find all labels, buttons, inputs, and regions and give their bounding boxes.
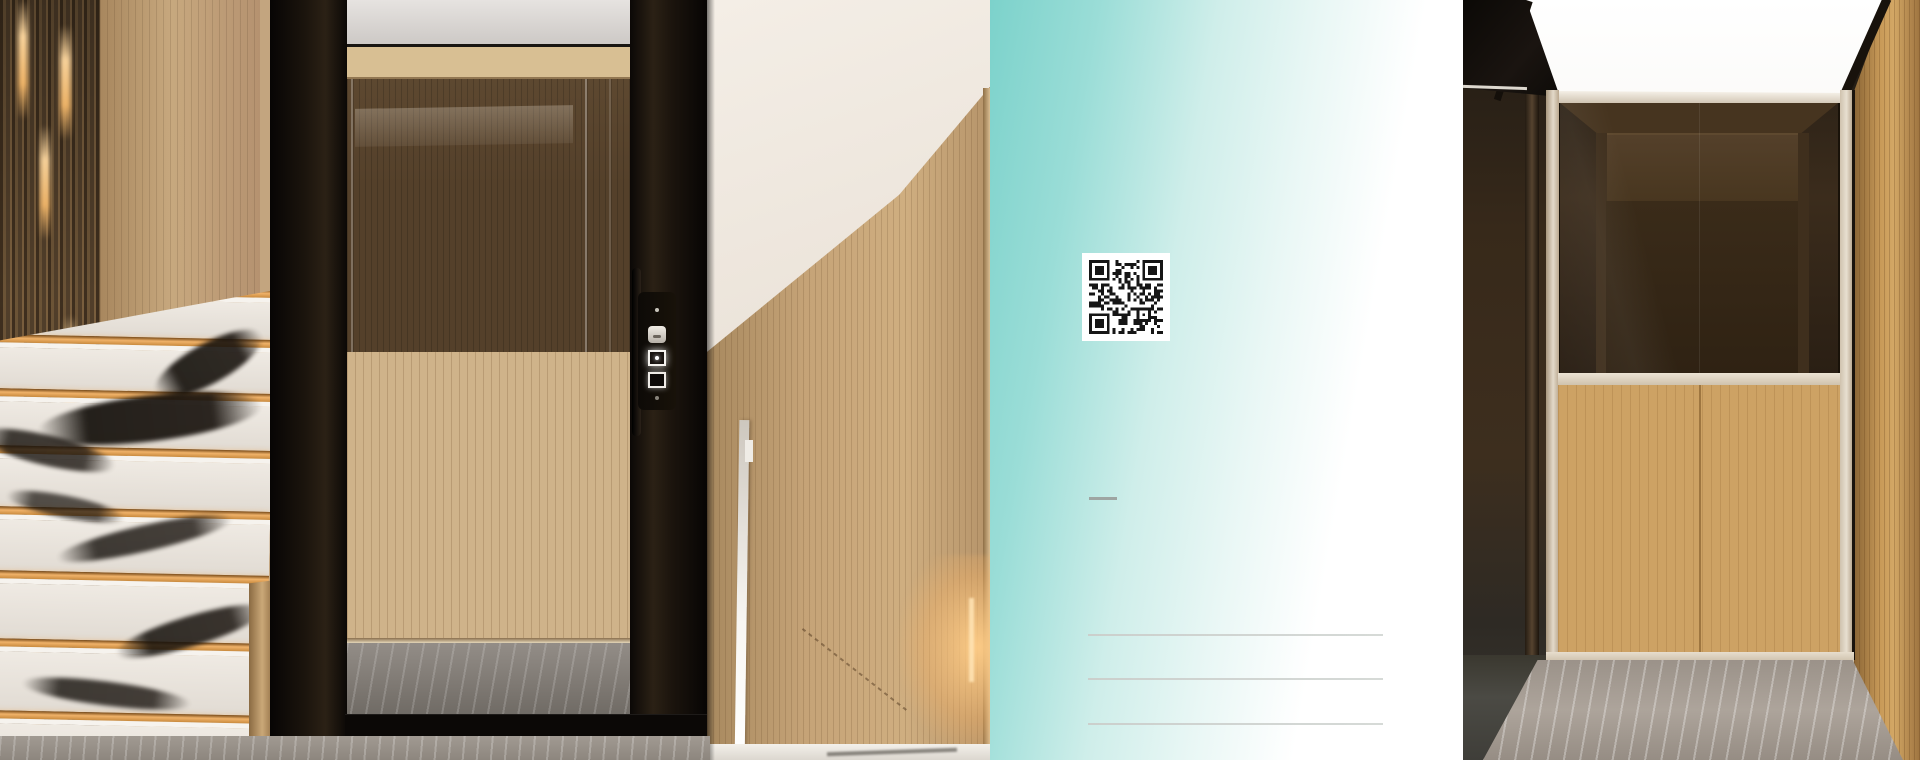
glass-reflection [355, 105, 573, 147]
smoked-glass-panel [1558, 103, 1840, 373]
divider-dash [1089, 497, 1117, 500]
indicator-dot [655, 396, 659, 400]
cab-lower-wall [347, 352, 630, 638]
call-button-up[interactable] [648, 350, 666, 366]
cab-upper-wall [347, 79, 630, 352]
wood-door-edge [249, 581, 271, 760]
brochure-spread [0, 0, 1920, 760]
cab-glass-top [347, 0, 630, 47]
elevator-control-panel [638, 292, 676, 410]
wood-grain [1854, 0, 1920, 760]
wall-sconce-light [969, 598, 974, 682]
railing-step-notch [745, 440, 753, 462]
cabin-floor-marble [1483, 660, 1903, 760]
elevator-cab [347, 0, 630, 716]
frame-shadow-line [1852, 90, 1855, 660]
glass-reflection [1558, 103, 1700, 373]
key-slot [653, 335, 661, 338]
contact-line [1088, 723, 1383, 725]
glass-door-edge [585, 79, 587, 352]
qr-code [1089, 260, 1163, 334]
accent-light [18, 0, 28, 120]
wood-grain [347, 352, 630, 638]
glass-door-edge [609, 79, 611, 352]
right-photo-cabin-interior [1463, 0, 1920, 760]
key-switch[interactable] [648, 326, 666, 343]
cab-floor-marble [347, 643, 630, 716]
teal-gradient-panel [990, 0, 1463, 760]
landing-wood-wall [707, 0, 990, 760]
indicator-dot [655, 308, 659, 312]
qr-code-patch [1082, 253, 1170, 341]
wall-sconce-glow [895, 555, 990, 760]
elevator-frame-left [270, 0, 347, 748]
accent-light [60, 25, 71, 140]
cab-pilaster [1798, 133, 1809, 373]
accent-light [40, 125, 50, 240]
glass-door-edge [351, 79, 353, 352]
shadow-edge [707, 0, 715, 760]
call-button-down[interactable] [648, 372, 666, 388]
marble-staircase [0, 284, 275, 760]
contact-line [1088, 678, 1383, 680]
button-light [655, 356, 659, 360]
cab-wood-band [347, 47, 630, 79]
oak-side-wall [1854, 0, 1920, 760]
panel-seam [1699, 385, 1701, 655]
contact-line [1088, 634, 1383, 636]
landing-floor-marble [0, 736, 710, 760]
left-photo-elevator-staircase [0, 0, 990, 760]
champagne-mid-band [1558, 373, 1840, 385]
oak-lower-panel [1558, 385, 1840, 655]
